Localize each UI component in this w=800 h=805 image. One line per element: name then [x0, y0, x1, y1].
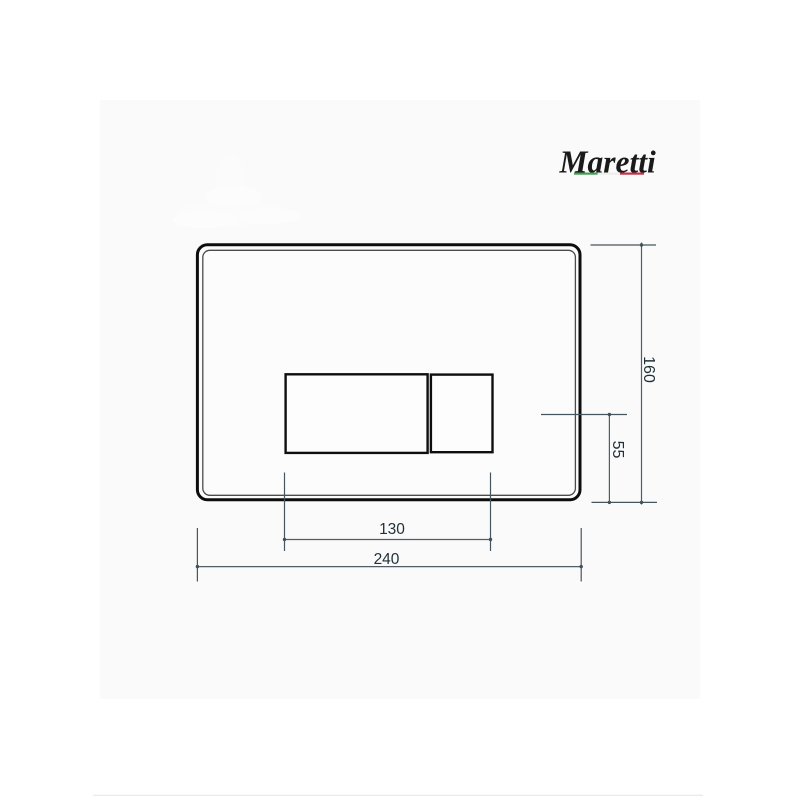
svg-text:240: 240	[374, 551, 400, 568]
svg-text:130: 130	[379, 521, 405, 538]
svg-text:55: 55	[609, 441, 626, 459]
svg-text:160: 160	[640, 356, 657, 383]
